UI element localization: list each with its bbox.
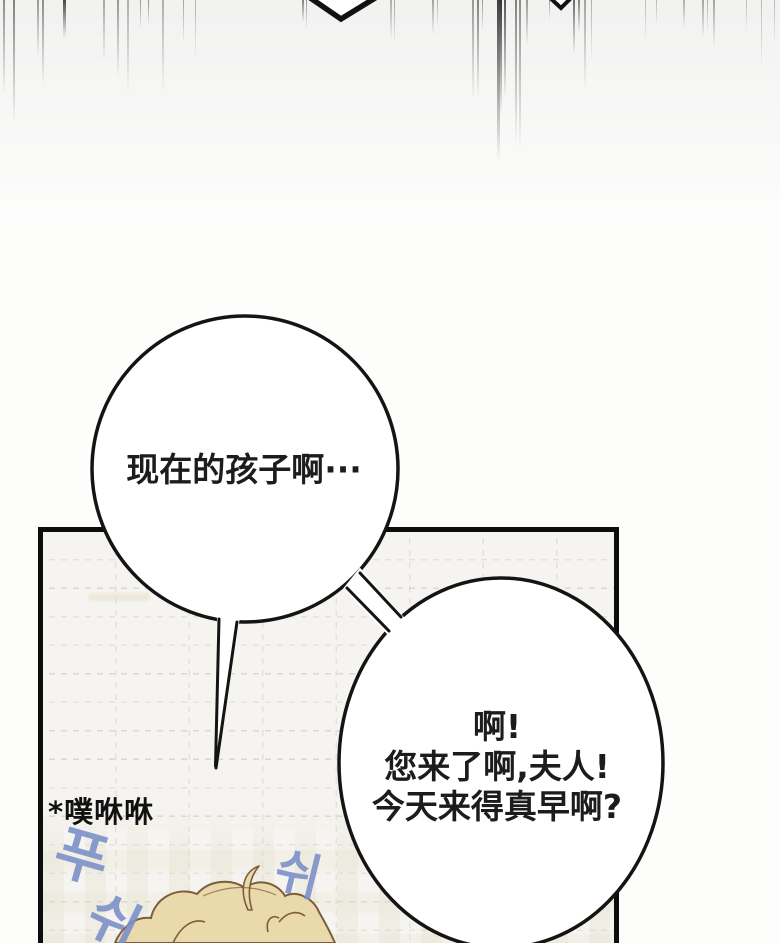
speed-line [702,0,704,38]
speed-line [683,0,685,28]
speed-line [573,0,575,54]
speed-line [774,0,775,46]
speed-line [519,0,521,150]
speed-line [526,0,528,45]
speed-line [148,0,149,25]
bubble-2-line-3: 今天来得真早啊? [347,787,647,827]
bubble-2-line-1: 啊! [347,707,647,747]
speed-line [183,0,184,45]
bubble-2-line-2: 您来了啊,夫人! [347,747,647,787]
bubble-1-dialogue: 现在的孩子啊··· [109,450,379,490]
speed-line [515,0,517,143]
speed-line [302,0,304,22]
speed-line [432,0,434,35]
speed-line [394,0,395,45]
speed-line [645,0,646,42]
speed-line [504,0,506,98]
comic-page: *噗咻咻 푸 쉬 쉬 现在的孩子啊··· 啊! 您来了啊,夫人! 今天来得真早啊… [0,0,780,943]
speed-line [591,0,592,62]
speed-line [42,0,44,85]
speed-line [127,0,129,95]
speed-line [437,0,438,28]
speed-line [13,0,15,125]
speed-line [477,0,479,97]
speed-line [500,0,502,115]
speed-line [482,0,483,32]
speed-line [37,0,39,58]
speed-line [140,0,141,30]
speed-line [656,0,657,26]
speed-line [117,0,119,78]
speed-line [390,0,392,40]
speed-line [63,0,66,38]
speed-line [3,0,5,95]
speed-line [746,0,747,32]
speed-line [306,0,307,30]
speed-line [713,0,715,48]
speed-line [761,0,762,72]
speed-lines-group [0,0,780,260]
speed-line [472,0,474,100]
speed-line [103,0,105,62]
speed-line [549,0,550,20]
speed-line [584,0,586,90]
speed-line [578,0,580,32]
speed-line [195,0,196,60]
speed-line [162,0,164,93]
bubble-2-dialogue: 啊! 您来了啊,夫人! 今天来得真早啊? [347,707,647,827]
speed-line [707,0,708,33]
